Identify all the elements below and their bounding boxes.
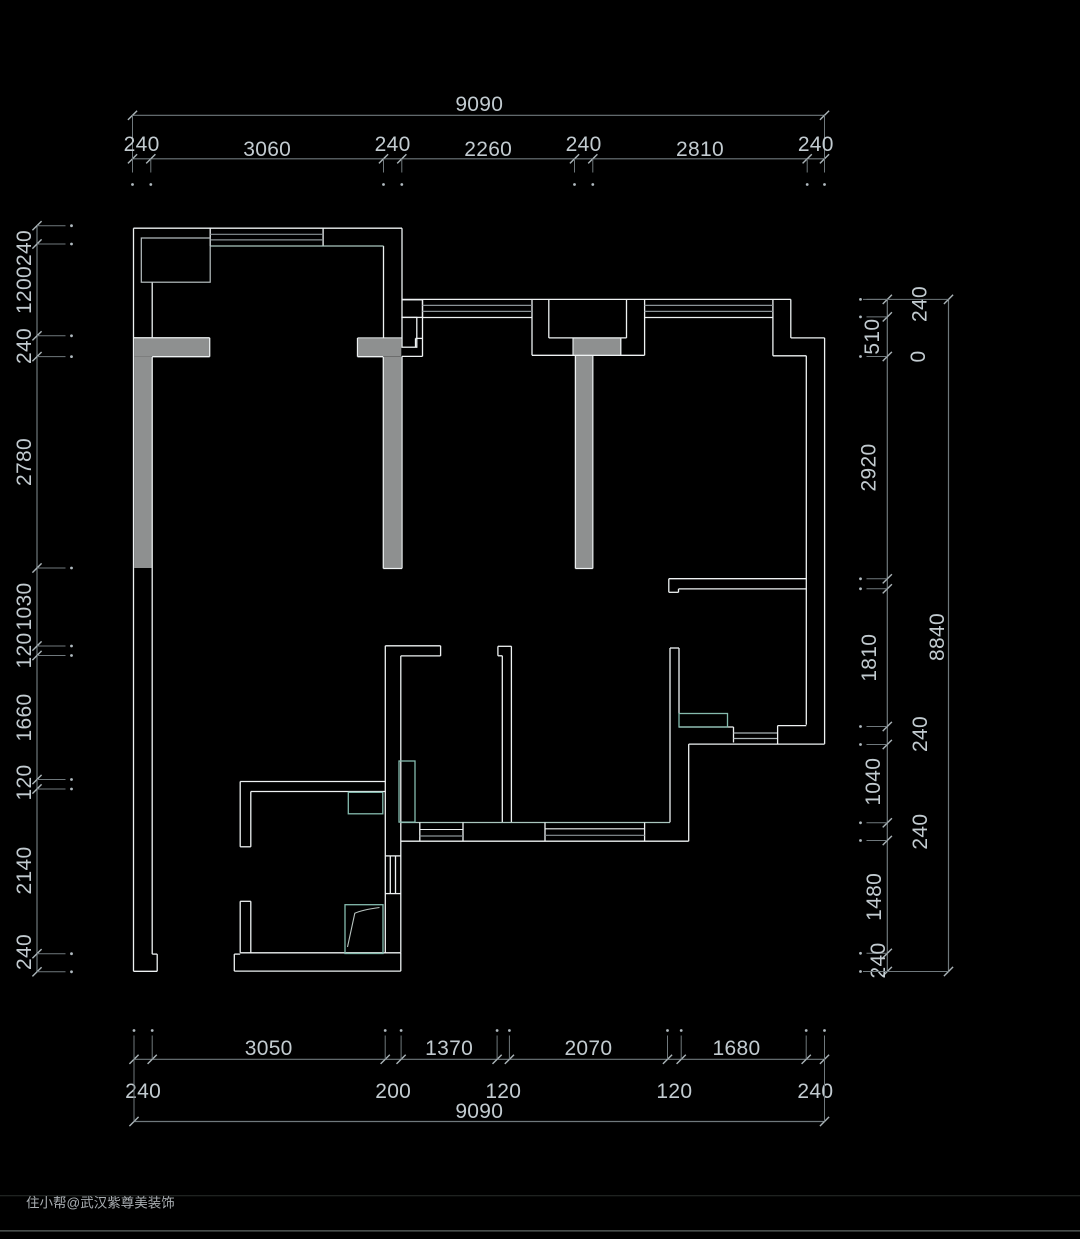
svg-text:240: 240 [13,934,36,970]
svg-text:200: 200 [375,1080,411,1103]
svg-text:9090: 9090 [455,93,503,116]
svg-text:240: 240 [798,133,834,156]
svg-text:240: 240 [375,133,411,156]
svg-text:2780: 2780 [13,438,36,486]
svg-text:120: 120 [13,765,36,801]
svg-text:9090: 9090 [455,1100,503,1123]
svg-text:120: 120 [13,633,36,669]
svg-text:240: 240 [797,1080,833,1103]
svg-text:240: 240 [867,943,890,979]
svg-text:240: 240 [124,133,160,156]
svg-text:240: 240 [909,286,932,322]
svg-text:2810: 2810 [676,138,724,161]
svg-text:240: 240 [566,133,602,156]
svg-text:3050: 3050 [245,1037,293,1060]
svg-text:0: 0 [907,351,930,363]
svg-text:240: 240 [13,230,36,266]
svg-text:120: 120 [656,1080,692,1103]
svg-text:240: 240 [909,716,932,752]
svg-text:2260: 2260 [464,138,512,161]
svg-text:240: 240 [125,1080,161,1103]
svg-text:1200: 1200 [13,266,36,314]
svg-text:1810: 1810 [858,634,881,682]
svg-text:8840: 8840 [926,613,949,661]
svg-text:1480: 1480 [863,873,886,921]
svg-text:1030: 1030 [13,583,36,631]
svg-text:1660: 1660 [13,694,36,742]
svg-text:240: 240 [13,328,36,364]
svg-text:240: 240 [909,814,932,850]
svg-text:510: 510 [861,319,884,355]
svg-text:2920: 2920 [858,444,881,492]
svg-text:2070: 2070 [564,1037,612,1060]
svg-text:1040: 1040 [862,758,885,806]
svg-text:1370: 1370 [425,1037,473,1060]
svg-text:3060: 3060 [243,138,291,161]
svg-text:1680: 1680 [713,1037,761,1060]
svg-text:2140: 2140 [13,847,36,895]
svg-text:住小帮@武汉紫尊美装饰: 住小帮@武汉紫尊美装饰 [26,1196,175,1211]
